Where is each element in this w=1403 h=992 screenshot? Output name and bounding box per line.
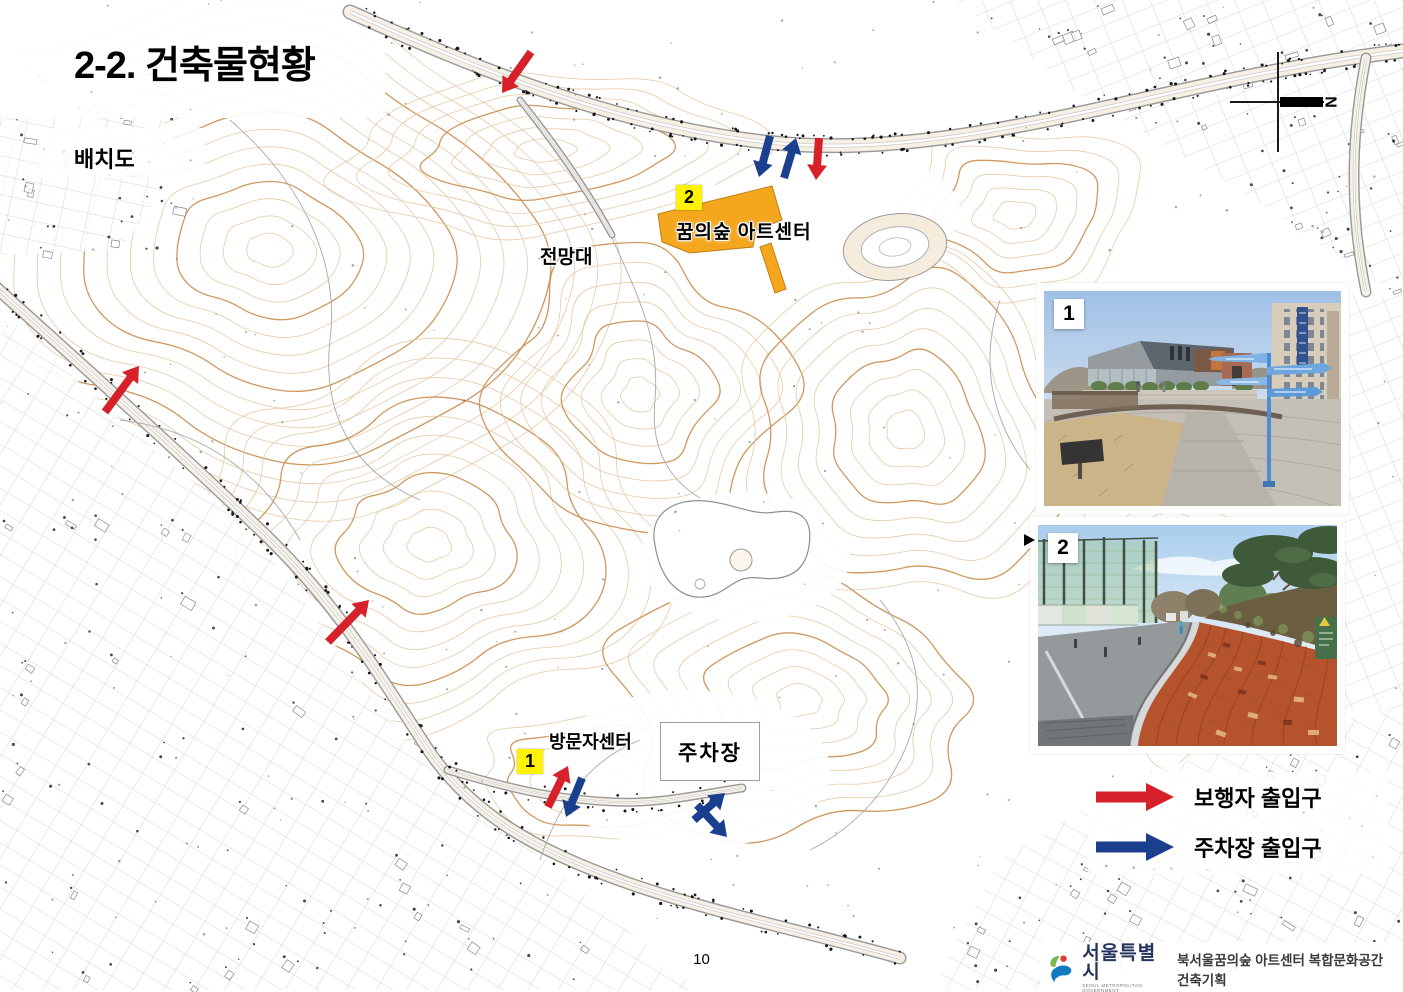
trail-sign	[1315, 617, 1337, 659]
seoul-logo-text: 서울특별시	[1082, 944, 1165, 982]
seoul-logo-subtext: SEOUL METROPOLITAN GOVERNMENT	[1082, 984, 1165, 992]
pedestrian-arrow-icon	[1096, 781, 1176, 813]
banner-wall	[1038, 605, 1138, 625]
legend-pedestrian-label: 보행자 출입구	[1194, 781, 1322, 813]
legend-parking-entrance: 주차장 출입구	[1096, 826, 1322, 868]
legend-pedestrian-entrance: 보행자 출입구	[1096, 776, 1322, 818]
parking-lot-label: 주차장	[678, 737, 742, 767]
photo-2-image	[1038, 525, 1337, 746]
visitor-center-label: 방문자센터	[549, 728, 632, 754]
page-title: 2-2. 건축물현황	[74, 34, 315, 89]
visitor-center-badge: 1	[517, 749, 543, 774]
footer: 서울특별시 SEOUL METROPOLITAN GOVERNMENT 북서울꿈…	[1040, 942, 1403, 992]
legend: 보행자 출입구 주차장 출입구	[1096, 776, 1322, 868]
parking-lot-label-box: 주차장	[660, 722, 760, 781]
seoul-logo-icon	[1046, 949, 1076, 989]
north-letter: N	[1322, 96, 1339, 108]
seoul-logo: 서울특별시 SEOUL METROPOLITAN GOVERNMENT	[1046, 944, 1165, 992]
art-center-badge: 2	[676, 185, 702, 210]
art-center-label: 꿈의숲 아트센터	[676, 217, 812, 244]
photo-2-label: 2	[1048, 533, 1078, 563]
photo-1-image	[1044, 291, 1341, 506]
observatory-label: 전망대	[540, 242, 592, 269]
project-title: 북서울꿈의숲 아트센터 복합문화공간 건축기획	[1177, 949, 1397, 989]
photo-1-label: 1	[1054, 299, 1084, 329]
north-compass: N	[1230, 46, 1348, 165]
layout-plan-label: 배치도	[74, 142, 135, 174]
parking-arrow-icon	[1096, 831, 1176, 863]
north-arrow-bar	[1280, 97, 1323, 107]
photo-2-pointer-icon	[1024, 534, 1035, 546]
photo-2: 2	[1030, 517, 1345, 754]
slide-page: 2-2. 건축물현황 배치도 전망대 2 꿈의숲 아트센터 1 방문자센터 주차…	[0, 0, 1403, 992]
legend-parking-label: 주차장 출입구	[1194, 831, 1322, 863]
photo-1: 1	[1036, 283, 1349, 514]
